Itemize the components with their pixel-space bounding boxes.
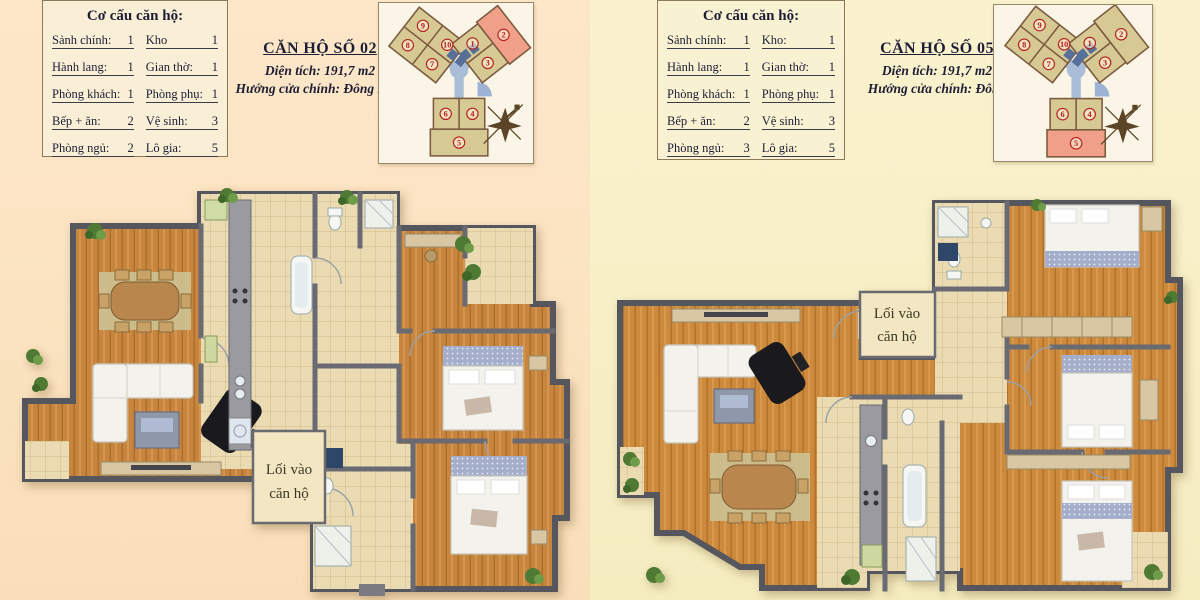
svg-text:căn hộ: căn hộ: [877, 329, 917, 345]
compass-icon: [1101, 105, 1141, 145]
svg-text:8: 8: [1022, 41, 1026, 50]
composition-table-02: Cơ cấu căn hộ: Sảnh chính:1 Kho1 Hành la…: [42, 0, 228, 157]
wall-stub: [359, 584, 385, 596]
keyplan-svg: 9 10 8 7 1 2 3 6 4 5: [379, 3, 533, 163]
keyplan-svg: 9 10 8 7 1 2 3 6 4 5: [994, 5, 1152, 161]
keyplan-stairs: [478, 82, 492, 96]
svg-text:7: 7: [1047, 60, 1051, 69]
coffee-table-top: [141, 418, 173, 432]
coffee-table-top: [720, 395, 748, 408]
kitchen-counter: [860, 405, 882, 567]
comp-row: Kho1: [146, 33, 218, 49]
svg-text:2: 2: [502, 31, 506, 40]
svg-text:7: 7: [430, 60, 434, 69]
comp-row: Phòng phụ:1: [146, 87, 218, 103]
svg-text:5: 5: [457, 138, 461, 147]
svg-text:3: 3: [486, 59, 490, 68]
storage: [938, 243, 958, 261]
svg-text:6: 6: [1061, 110, 1065, 119]
apartment-panel-02: Cơ cấu căn hộ: Sảnh chính:1 Kho1 Hành la…: [0, 0, 590, 600]
composition-table-05: Cơ cấu căn hộ: Sảnh chính:1 Kho:1 Hành l…: [657, 0, 845, 160]
svg-text:10: 10: [443, 41, 451, 50]
composition-grid: Sảnh chính:1 Kho:1 Hành lang:1 Gian thờ:…: [667, 33, 835, 157]
entrance-label: Lối vào: [874, 306, 920, 322]
svg-text:9: 9: [421, 22, 425, 31]
svg-text:1: 1: [470, 39, 474, 48]
comp-row: Vệ sinh:3: [762, 114, 835, 130]
wardrobe: [1007, 455, 1130, 469]
composition-grid: Sảnh chính:1 Kho1 Hành lang:1 Gian thờ:1…: [52, 33, 218, 157]
svg-text:8: 8: [406, 41, 410, 50]
floorplan-02: Lối vào căn hộ: [15, 186, 585, 596]
comp-row: Phòng ngủ:2: [52, 141, 134, 157]
entrance-label: Lối vào: [266, 462, 312, 478]
svg-text:6: 6: [444, 110, 448, 119]
svg-text:căn hộ: căn hộ: [269, 486, 309, 502]
keyplan-stairs: [1095, 82, 1110, 97]
tv: [704, 312, 768, 317]
comp-row: Phòng ngủ:3: [667, 141, 750, 157]
dining-set: [710, 451, 810, 523]
entrance-lobby: Lối vào căn hộ: [860, 292, 935, 357]
composition-title: Cơ cấu căn hộ:: [52, 8, 218, 25]
svg-text:4: 4: [470, 110, 474, 119]
comp-row: Vệ sinh:3: [146, 114, 218, 130]
keyplan-02: 9 10 8 7 1 2 3 6 4 5: [378, 2, 534, 164]
comp-row: Hành lang:1: [52, 60, 134, 76]
comp-row: Lô gia:5: [762, 141, 835, 157]
comp-row: Hành lang:1: [667, 60, 750, 76]
comp-row: Sảnh chính:1: [52, 33, 134, 49]
svg-text:10: 10: [1060, 40, 1068, 49]
comp-row: Gian thờ:1: [762, 60, 835, 76]
comp-row: Bếp + ăn:2: [52, 114, 134, 130]
apartment-panel-05: Cơ cấu căn hộ: Sảnh chính:1 Kho:1 Hành l…: [590, 0, 1200, 600]
svg-text:3: 3: [1103, 58, 1107, 67]
comp-row: Phòng khách:1: [52, 87, 134, 103]
bed-bottom: [1062, 481, 1132, 581]
comp-row: Kho:1: [762, 33, 835, 49]
comp-row: Bếp + ăn:2: [667, 114, 750, 130]
compass-icon: [484, 105, 523, 144]
tv: [131, 465, 191, 470]
entrance-lobby: Lối vào căn hộ: [253, 431, 325, 523]
svg-text:9: 9: [1037, 21, 1041, 30]
composition-title: Cơ cấu căn hộ:: [667, 8, 835, 25]
svg-text:2: 2: [1119, 30, 1123, 39]
dining-set: [99, 270, 191, 332]
comp-row: Lô gia:5: [146, 141, 218, 157]
comp-row: Phòng khách:1: [667, 87, 750, 103]
comp-row: Sảnh chính:1: [667, 33, 750, 49]
keyplan-05: 9 10 8 7 1 2 3 6 4 5: [993, 4, 1153, 162]
svg-text:4: 4: [1088, 110, 1092, 119]
floorplan-05: Lối vào căn hộ: [612, 197, 1188, 595]
comp-row: Gian thờ:1: [146, 60, 218, 76]
svg-text:1: 1: [1088, 39, 1092, 48]
comp-row: Phòng phụ:1: [762, 87, 835, 103]
svg-text:5: 5: [1074, 139, 1078, 148]
